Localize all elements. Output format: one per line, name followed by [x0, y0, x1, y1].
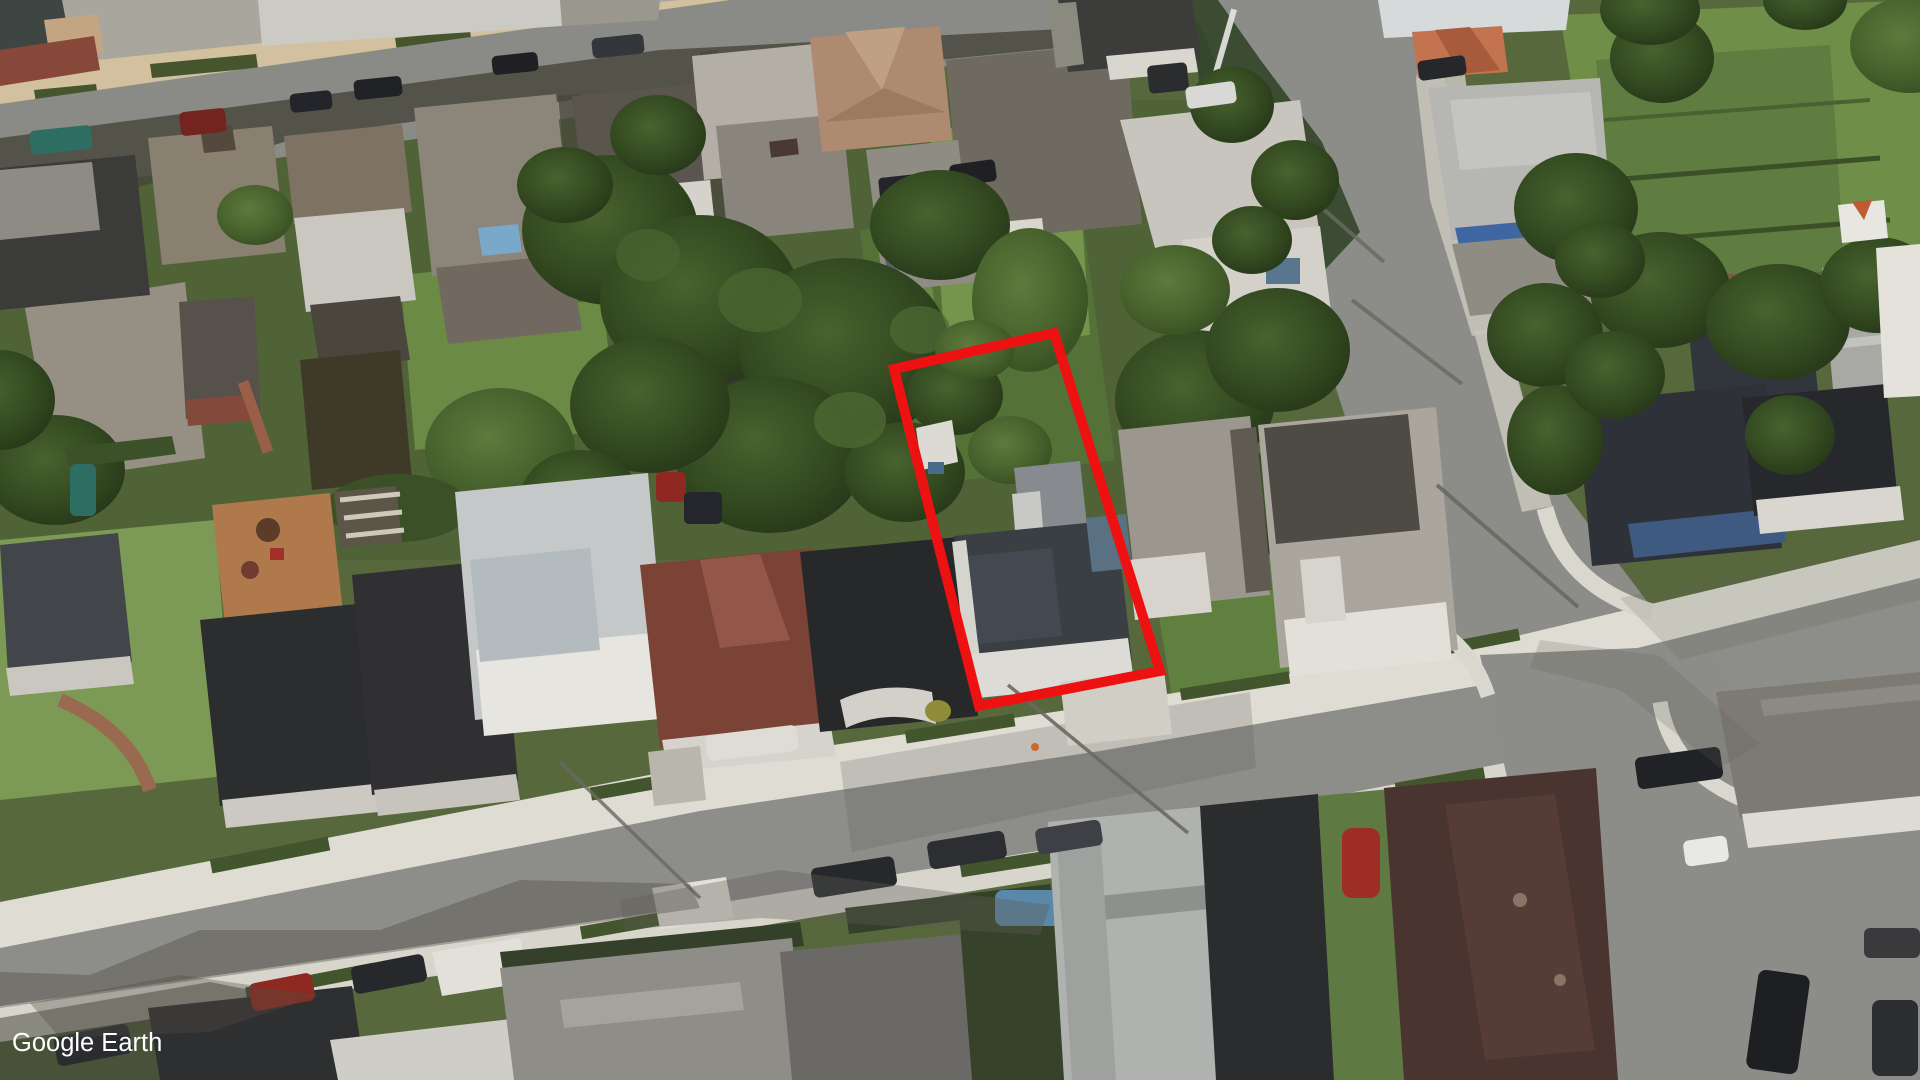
svg-text:Google Earth: Google Earth — [12, 1029, 162, 1057]
